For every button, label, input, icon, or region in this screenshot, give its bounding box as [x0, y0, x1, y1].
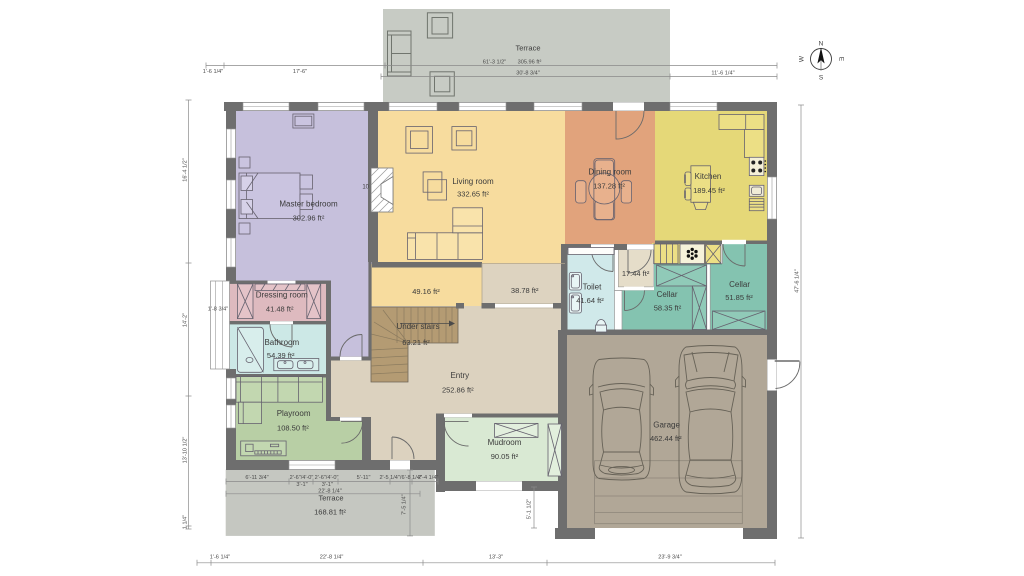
svg-text:1 1/4": 1 1/4" — [183, 515, 189, 529]
svg-text:1'-6 1/4": 1'-6 1/4" — [210, 554, 230, 560]
svg-text:S: S — [819, 75, 824, 82]
svg-text:49.16 ft²: 49.16 ft² — [412, 287, 440, 296]
svg-text:Under stairs: Under stairs — [396, 322, 439, 331]
svg-text:Mudroom: Mudroom — [488, 438, 522, 447]
svg-text:38.78 ft²: 38.78 ft² — [511, 286, 539, 295]
svg-text:13'-10 1/2": 13'-10 1/2" — [183, 437, 189, 464]
svg-text:Cellar: Cellar — [657, 290, 678, 299]
svg-text:90.05 ft²: 90.05 ft² — [491, 452, 519, 461]
svg-text:Master bedroom: Master bedroom — [279, 200, 338, 209]
svg-text:Bathroom: Bathroom — [264, 338, 299, 347]
svg-text:2'-4 1/4": 2'-4 1/4" — [418, 475, 438, 481]
svg-text:108.50 ft²: 108.50 ft² — [277, 423, 309, 432]
svg-text:Terrace: Terrace — [515, 44, 540, 53]
svg-text:10: 10 — [362, 185, 369, 191]
svg-text:Cellar: Cellar — [729, 280, 750, 289]
svg-text:Dressing room: Dressing room — [256, 291, 308, 300]
svg-text:252.86 ft²: 252.86 ft² — [442, 386, 474, 395]
svg-text:332.65 ft²: 332.65 ft² — [457, 190, 489, 199]
svg-text:305.96 ft²: 305.96 ft² — [518, 60, 542, 66]
svg-text:3'-1": 3'-1" — [322, 482, 333, 488]
svg-text:462.44 ft²: 462.44 ft² — [650, 434, 682, 443]
svg-text:22'-8 1/4": 22'-8 1/4" — [318, 488, 342, 494]
svg-text:189.45 ft²: 189.45 ft² — [693, 186, 725, 195]
svg-text:63.21 ft²: 63.21 ft² — [402, 338, 430, 347]
svg-text:Playroom: Playroom — [277, 409, 311, 418]
svg-text:Living room: Living room — [452, 177, 494, 186]
svg-text:2'-5 1/4"/6'-8 1/4": 2'-5 1/4"/6'-8 1/4" — [379, 475, 422, 481]
svg-text:Terrace: Terrace — [318, 494, 343, 503]
svg-text:6'-11 3/4": 6'-11 3/4" — [245, 475, 268, 481]
svg-text:7'-5 1/4": 7'-5 1/4" — [402, 494, 408, 514]
svg-text:1'-8 3/4": 1'-8 3/4" — [208, 307, 228, 313]
svg-text:Toilet: Toilet — [583, 283, 602, 292]
svg-text:47'-6 1/4": 47'-6 1/4" — [795, 269, 801, 293]
svg-text:58.35 ft²: 58.35 ft² — [654, 304, 682, 313]
svg-text:5'-1 1/2": 5'-1 1/2" — [527, 499, 533, 519]
svg-text:137.28 ft²: 137.28 ft² — [593, 182, 625, 191]
svg-text:16'-4 1/2": 16'-4 1/2" — [183, 158, 189, 182]
svg-text:11'-6 1/4": 11'-6 1/4" — [711, 71, 734, 77]
svg-text:54.39 ft²: 54.39 ft² — [267, 351, 295, 360]
svg-text:5'-11": 5'-11" — [357, 475, 371, 481]
svg-text:2'-6"/4'-0": 2'-6"/4'-0" — [290, 475, 314, 481]
svg-text:22'-8 1/4": 22'-8 1/4" — [320, 554, 344, 560]
svg-text:168.81 ft²: 168.81 ft² — [314, 508, 346, 517]
svg-text:Entry: Entry — [450, 371, 469, 380]
svg-text:17'-6": 17'-6" — [293, 69, 307, 75]
svg-text:302.96 ft²: 302.96 ft² — [293, 214, 325, 223]
svg-text:2'-6"/4'-0": 2'-6"/4'-0" — [315, 475, 339, 481]
svg-text:51.85 ft²: 51.85 ft² — [725, 293, 753, 302]
svg-text:17.44 ft²: 17.44 ft² — [622, 269, 650, 278]
svg-text:3'-1": 3'-1" — [296, 482, 307, 488]
svg-text:23'-9 3/4": 23'-9 3/4" — [658, 554, 682, 560]
svg-text:Kitchen: Kitchen — [695, 172, 722, 181]
svg-text:61'-3 1/2": 61'-3 1/2" — [483, 60, 507, 66]
svg-text:Garage: Garage — [653, 421, 680, 430]
svg-text:13'-3": 13'-3" — [489, 554, 503, 560]
svg-text:W: W — [799, 55, 806, 62]
svg-text:30'-8 3/4": 30'-8 3/4" — [516, 71, 540, 77]
svg-text:E: E — [838, 57, 845, 62]
svg-text:41.48 ft²: 41.48 ft² — [266, 305, 294, 314]
svg-text:Dining room: Dining room — [588, 168, 631, 177]
svg-text:1'-6 1/4": 1'-6 1/4" — [203, 69, 223, 75]
svg-text:41.64 ft²: 41.64 ft² — [576, 296, 604, 305]
svg-text:N: N — [819, 41, 824, 48]
svg-text:14'-2": 14'-2" — [183, 313, 189, 327]
